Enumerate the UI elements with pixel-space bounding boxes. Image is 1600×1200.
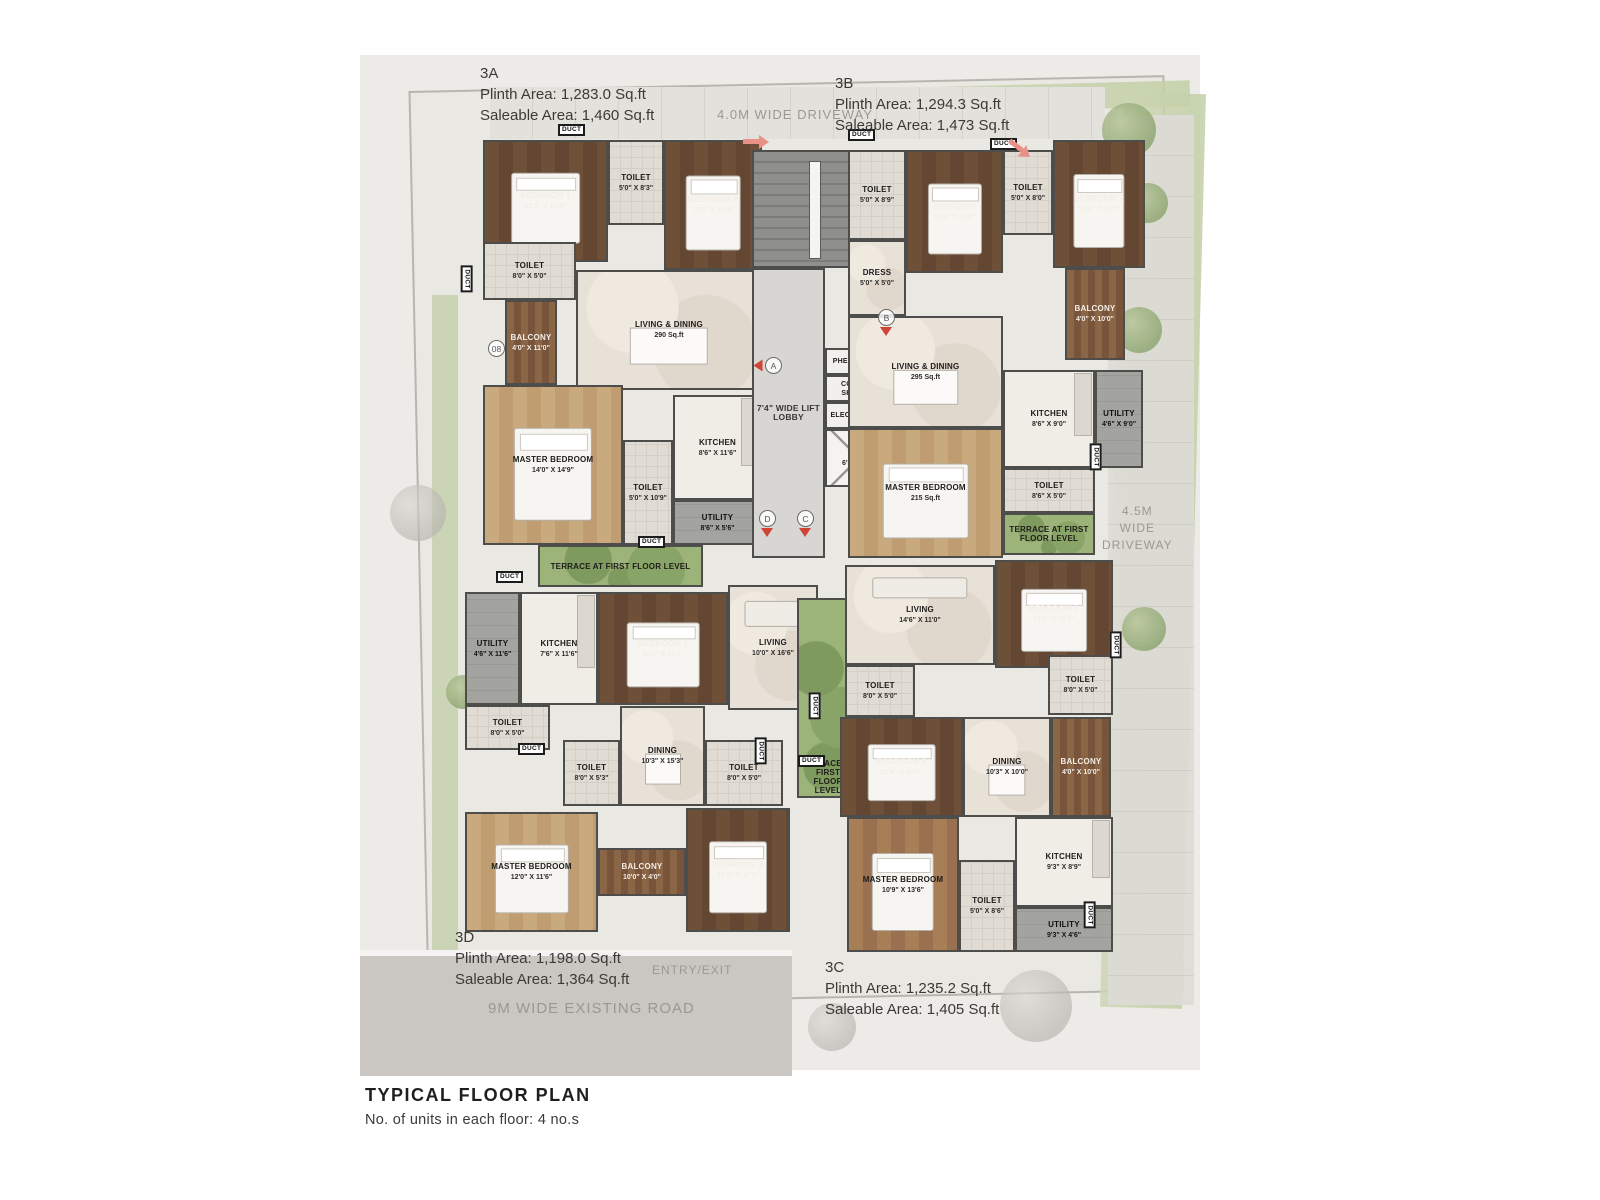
room-name: BEDROOM 1: [1029, 604, 1079, 613]
room-name: TOILET: [577, 763, 607, 772]
room-label: TOILET8'0" X 5'0": [725, 762, 763, 784]
unit-id: 3A: [480, 63, 654, 84]
room-label: BEDROOM 211'9" X 10'0": [874, 756, 928, 778]
driveway-right-line1: 4.5M: [1102, 503, 1173, 520]
unit-id: 3D: [455, 927, 629, 948]
room-name: UTILITY: [477, 639, 509, 648]
room-toilet: TOILET5'0" X 8'6": [959, 860, 1015, 952]
reference-marker-08: 08: [488, 340, 505, 357]
room-dimensions: 12'0" X 11'6": [511, 873, 553, 882]
room-kitchen: KITCHEN8'6" X 9'0": [1003, 370, 1095, 468]
room-label: BEDROOM 111'3" X 10'9": [518, 190, 572, 212]
room-bedroom: BEDROOM10'3" X 13'0": [906, 150, 1003, 273]
room-dimensions: 9'3" X 4'6": [1047, 931, 1081, 940]
room-name: DINING: [648, 746, 677, 755]
duct-label: DUCT: [496, 571, 523, 583]
room-master-bedroom: MASTER BEDROOM12'0" X 11'6": [465, 812, 598, 932]
room-balcony: BALCONY10'0" X 4'0": [598, 848, 686, 896]
room-toilet: TOILET8'0" X 5'0": [705, 740, 783, 806]
direction-triangle-icon: [880, 327, 892, 336]
room-name: UTILITY: [1048, 920, 1080, 929]
room-label: BEDROOM 113'6" X 11'0": [1027, 603, 1081, 625]
room-name: TERRACE AT FIRST FLOOR LEVEL: [1007, 525, 1091, 543]
room-bedroom-1: BEDROOM 110'3" X 11'6": [598, 592, 728, 705]
room-dimensions: 10'6" X 13'9": [692, 206, 734, 215]
room-label: BEDROOM10'3" X 13'0": [931, 201, 978, 223]
room-bedroom-2: BEDROOM 210'6" X 13'9": [664, 140, 762, 270]
room-name: DRESS: [863, 268, 892, 277]
room-dimensions: 5'0" X 5'0": [860, 279, 894, 288]
room-bedroom-2: BEDROOM 211'9" X 10'0": [840, 717, 963, 817]
room-label: TOILET8'6" X 5'0": [1030, 480, 1068, 502]
room-bedroom-2: BEDROOM 210'0" X 12'0": [686, 808, 790, 932]
room-label: LIVING & DINING290 Sq.ft: [633, 319, 705, 341]
room-label: KITCHEN8'6" X 9'0": [1029, 408, 1070, 430]
landscape-strip-left: [432, 295, 458, 955]
room-dimensions: 8'0" X 5'0": [863, 692, 897, 701]
room-label: UTILITY4'6" X 9'0": [1100, 408, 1138, 430]
room-dimensions: 8'0" X 5'0": [727, 774, 761, 783]
room-label: BEDROOM 210'0" X 12'0": [711, 859, 765, 881]
room-label: BEDROOM 210'3" X 13'0": [1072, 193, 1126, 215]
room-master-bedroom: MASTER BEDROOM215 Sq.ft: [848, 428, 1003, 558]
room-dimensions: 5'0" X 8'3": [619, 184, 653, 193]
duct-label: DUCT: [461, 265, 473, 292]
room-name: TOILET: [493, 718, 523, 727]
driveway-right-label: 4.5M WIDE DRIVEWAY: [1102, 503, 1173, 554]
duct-label: DUCT: [809, 692, 821, 719]
unit-saleable: Saleable Area: 1,460 Sq.ft: [480, 107, 654, 124]
room-dining: DINING10'3" X 15'3": [620, 706, 705, 806]
room-label: BALCONY4'0" X 11'0": [509, 332, 554, 354]
room-label: 7'4" WIDE LIFT LOBBY: [754, 403, 823, 423]
room-master-bedroom: MASTER BEDROOM14'0" X 14'9": [483, 385, 623, 545]
room-kitchen: KITCHEN9'3" X 8'9": [1015, 817, 1113, 907]
room-dimensions: 5'0" X 8'0": [1011, 194, 1045, 203]
room-dimensions: 290 Sq.ft: [654, 331, 683, 340]
room-balcony: BALCONY4'0" X 10'0": [1051, 717, 1111, 817]
room-dimensions: 10'3" X 10'0": [986, 768, 1028, 777]
room-utility: UTILITY4'6" X 9'0": [1095, 370, 1143, 468]
room-utility: UTILITY8'6" X 5'6": [673, 500, 762, 545]
room-label: TOILET8'0" X 5'0": [1061, 674, 1099, 696]
room-name: TOILET: [1034, 481, 1064, 490]
room-balcony: BALCONY4'0" X 11'0": [505, 300, 557, 385]
room-name: MASTER BEDROOM: [491, 862, 572, 871]
duct-label: DUCT: [1110, 631, 1122, 658]
room-label: DINING10'3" X 10'0": [984, 756, 1030, 778]
room-label: TOILET8'0" X 5'0": [488, 717, 526, 739]
room-dimensions: 7'6" X 11'6": [540, 650, 578, 659]
room-label: BEDROOM 110'3" X 11'6": [636, 638, 690, 660]
room-label: TOILET8'0" X 5'0": [861, 680, 899, 702]
tree-icon: [1122, 607, 1166, 651]
room-name: BEDROOM 2: [688, 195, 738, 204]
room-dimensions: 11'3" X 10'9": [525, 202, 567, 211]
room-name: TOILET: [865, 681, 895, 690]
driveway-right-line3: DRIVEWAY: [1102, 537, 1173, 554]
room-dimensions: 8'6" X 5'6": [700, 524, 734, 533]
room-dimensions: 5'0" X 8'6": [970, 907, 1004, 916]
room-living: LIVING14'6" X 11'0": [845, 565, 995, 665]
room-toilet: TOILET8'0" X 5'0": [1048, 655, 1113, 715]
room-name: MASTER BEDROOM: [513, 455, 594, 464]
sofa-icon: [872, 578, 967, 599]
room-dimensions: 4'0" X 10'0": [1062, 768, 1100, 777]
room-utility: UTILITY9'3" X 4'6": [1015, 907, 1113, 952]
room-dimensions: 10'3" X 13'0": [934, 213, 976, 222]
room-name: KITCHEN: [1046, 852, 1083, 861]
room-name: LIVING & DINING: [635, 320, 703, 329]
title-block: TYPICAL FLOOR PLAN No. of units in each …: [365, 1085, 591, 1128]
room-label: LIVING14'6" X 11'0": [897, 604, 943, 626]
room-name: KITCHEN: [699, 438, 736, 447]
room-label: TERRACE AT FIRST FLOOR LEVEL: [549, 561, 693, 572]
duct-label: DUCT: [518, 743, 545, 755]
room-toilet: TOILET5'0" X 8'0": [1003, 150, 1053, 235]
room-dimensions: 4'6" X 11'6": [474, 650, 512, 659]
room-label: BALCONY4'0" X 10'0": [1073, 303, 1118, 325]
direction-triangle-icon: [761, 528, 773, 537]
entry-exit-label: ENTRY/EXIT: [652, 963, 732, 977]
room-name: TOILET: [1066, 675, 1096, 684]
room-dimensions: 5'0" X 8'9": [860, 196, 894, 205]
room-toilet: TOILET5'0" X 8'9": [848, 150, 906, 240]
room-name: LIVING: [759, 638, 787, 647]
sofa-icon: [744, 601, 801, 627]
duct-label: DUCT: [638, 536, 665, 548]
room-toilet: TOILET8'0" X 5'3": [563, 740, 620, 806]
room-utility: UTILITY4'6" X 11'6": [465, 592, 520, 705]
room-master-bedroom: MASTER BEDROOM10'9" X 13'6": [847, 817, 959, 952]
duct-label: DUCT: [798, 755, 825, 767]
room-dimensions: 10'9" X 13'6": [882, 886, 924, 895]
room-name: UTILITY: [1103, 409, 1135, 418]
room-name: BALCONY: [511, 333, 552, 342]
room-terrace-at-first-floor-level: TERRACE AT FIRST FLOOR LEVEL: [1003, 513, 1095, 555]
room-dimensions: 10'3" X 11'6": [642, 650, 684, 659]
room-dimensions: 8'0" X 5'3": [574, 774, 608, 783]
room-label: UTILITY4'6" X 11'6": [472, 638, 514, 660]
floor-plan: 4.0M WIDE DRIVEWAY 4.5M WIDE DRIVEWAY 9M…: [360, 55, 1200, 1070]
direction-triangle-icon: [799, 528, 811, 537]
driveway-right-line2: WIDE: [1102, 520, 1173, 537]
room-dimensions: 10'0" X 12'0": [717, 871, 759, 880]
room-terrace-at-first-floor-level: TERRACE AT FIRST FLOOR LEVEL: [538, 545, 703, 587]
room-living-dining: LIVING & DINING290 Sq.ft: [576, 270, 762, 390]
room-label: LIVING10'0" X 16'6": [750, 637, 796, 659]
road-label: 9M WIDE EXISTING ROAD: [488, 1000, 695, 1017]
plan-title: TYPICAL FLOOR PLAN: [365, 1085, 591, 1106]
room-name: MASTER BEDROOM: [885, 483, 966, 492]
reference-marker-b: B: [878, 309, 895, 326]
unit-plinth: Plinth Area: 1,294.3 Sq.ft: [835, 96, 1001, 113]
room-name: BALCONY: [622, 862, 663, 871]
room-name: BEDROOM 1: [638, 639, 688, 648]
room-dimensions: 295 Sq.ft: [911, 373, 940, 382]
room-name: UTILITY: [702, 513, 734, 522]
duct-label: DUCT: [755, 737, 767, 764]
room-dimensions: 8'0" X 5'0": [1063, 686, 1097, 695]
room-toilet: TOILET8'6" X 5'0": [1003, 468, 1095, 513]
unit-header-3b: 3B Plinth Area: 1,294.3 Sq.ft Saleable A…: [835, 73, 1009, 136]
room-dimensions: 11'9" X 10'0": [881, 768, 923, 777]
room-name: TERRACE AT FIRST FLOOR LEVEL: [551, 562, 691, 571]
room-label: TOILET8'0" X 5'3": [572, 762, 610, 784]
room-label: BEDROOM 210'6" X 13'9": [686, 194, 740, 216]
direction-triangle-icon: [754, 360, 763, 372]
reference-marker-d: D: [759, 510, 776, 527]
driveway-direction-arrow: [743, 139, 759, 144]
room-name: KITCHEN: [1031, 409, 1068, 418]
room-dimensions: 8'6" X 9'0": [1032, 420, 1066, 429]
reference-marker-a: A: [765, 357, 782, 374]
room-label: LIVING & DINING295 Sq.ft: [890, 361, 962, 383]
unit-plinth: Plinth Area: 1,283.0 Sq.ft: [480, 86, 646, 103]
room-dimensions: 4'6" X 9'0": [1102, 420, 1136, 429]
room-name: BEDROOM: [933, 202, 976, 211]
room-name: BEDROOM 2: [713, 860, 763, 869]
unit-id: 3C: [825, 957, 999, 978]
room-dimensions: 9'3" X 8'9": [1047, 863, 1081, 872]
room-label: TOILET5'0" X 10'9": [627, 482, 669, 504]
room-toilet: TOILET5'0" X 10'9": [623, 440, 673, 545]
room-name: TOILET: [515, 261, 545, 270]
room-name: KITCHEN: [541, 639, 578, 648]
room-name: TOILET: [972, 896, 1002, 905]
reference-marker-c: C: [797, 510, 814, 527]
room-name: TOILET: [1013, 183, 1043, 192]
tree-icon: [390, 485, 446, 541]
room-dimensions: 10'0" X 4'0": [623, 873, 661, 882]
room-balcony: BALCONY4'0" X 10'0": [1065, 268, 1125, 360]
room-dimensions: 13'6" X 11'0": [1033, 615, 1075, 624]
room-toilet: TOILET8'0" X 5'0": [845, 665, 915, 717]
unit-plinth: Plinth Area: 1,235.2 Sq.ft: [825, 980, 991, 997]
unit-plinth: Plinth Area: 1,198.0 Sq.ft: [455, 950, 621, 967]
room-label: DRESS5'0" X 5'0": [858, 267, 896, 289]
room-label: TOILET5'0" X 8'0": [1009, 182, 1047, 204]
room-name: BEDROOM 2: [876, 757, 926, 766]
unit-header-3d: 3D Plinth Area: 1,198.0 Sq.ft Saleable A…: [455, 927, 629, 990]
room-dimensions: 8'6" X 11'6": [699, 449, 737, 458]
plan-subtitle: No. of units in each floor: 4 no.s: [365, 1112, 591, 1128]
room-name: TOILET: [862, 185, 892, 194]
room-label: KITCHEN8'6" X 11'6": [697, 437, 739, 459]
room-name: BALCONY: [1075, 304, 1116, 313]
duct-label: DUCT: [1084, 901, 1096, 928]
room-label: TOILET8'0" X 5'0": [510, 260, 548, 282]
room-label: UTILITY8'6" X 5'6": [698, 512, 736, 534]
duct-label: DUCT: [1090, 443, 1102, 470]
room-dimensions: 14'6" X 11'0": [899, 616, 941, 625]
room-toilet: TOILET8'0" X 5'0": [483, 242, 576, 300]
room-kitchen: KITCHEN7'6" X 11'6": [520, 592, 598, 705]
room-dimensions: 5'0" X 10'9": [629, 494, 667, 503]
room-dining: DINING10'3" X 10'0": [963, 717, 1051, 817]
unit-id: 3B: [835, 73, 1009, 94]
room-dimensions: 10'3" X 13'0": [1078, 205, 1120, 214]
unit-header-3c: 3C Plinth Area: 1,235.2 Sq.ft Saleable A…: [825, 957, 999, 1020]
room-label: TERRACE AT FIRST FLOOR LEVEL: [1005, 524, 1093, 544]
room-name: TOILET: [621, 173, 651, 182]
tree-icon: [1000, 970, 1072, 1042]
room-dimensions: 4'0" X 11'0": [512, 344, 550, 353]
room-bedroom-2: BEDROOM 210'3" X 13'0": [1053, 140, 1145, 268]
room-label: TOILET5'0" X 8'6": [968, 895, 1006, 917]
room-name: MASTER BEDROOM: [863, 875, 944, 884]
unit-saleable: Saleable Area: 1,364 Sq.ft: [455, 971, 629, 988]
room-name: LIVING: [906, 605, 934, 614]
room-label: MASTER BEDROOM10'9" X 13'6": [861, 874, 946, 896]
room-name: BEDROOM 2: [1074, 194, 1124, 203]
room-label: BALCONY4'0" X 10'0": [1059, 756, 1104, 778]
room-name: TOILET: [633, 483, 663, 492]
room-label: TOILET5'0" X 8'3": [617, 172, 655, 194]
room-label: MASTER BEDROOM215 Sq.ft: [883, 482, 968, 504]
room-dimensions: 8'0" X 5'0": [512, 272, 546, 281]
room-dimensions: 14'0" X 14'9": [532, 466, 574, 475]
page: 4.0M WIDE DRIVEWAY 4.5M WIDE DRIVEWAY 9M…: [0, 0, 1600, 1200]
unit-saleable: Saleable Area: 1,405 Sq.ft: [825, 1001, 999, 1018]
room-dimensions: 215 Sq.ft: [911, 494, 940, 503]
room-label: BALCONY10'0" X 4'0": [620, 861, 665, 883]
room-label: KITCHEN9'3" X 8'9": [1044, 851, 1085, 873]
room-living-dining: LIVING & DINING295 Sq.ft: [848, 316, 1003, 428]
room-label: UTILITY9'3" X 4'6": [1045, 919, 1083, 941]
room-name: DINING: [992, 757, 1021, 766]
room-toilet: TOILET5'0" X 8'3": [608, 140, 664, 225]
room-kitchen: KITCHEN8'6" X 11'6": [673, 395, 762, 500]
room-name: LIVING & DINING: [892, 362, 960, 371]
unit-saleable: Saleable Area: 1,473 Sq.ft: [835, 117, 1009, 134]
unit-header-3a: 3A Plinth Area: 1,283.0 Sq.ft Saleable A…: [480, 63, 654, 126]
room-name: BALCONY: [1061, 757, 1102, 766]
room-name: BEDROOM 1: [520, 191, 570, 200]
room-dimensions: 10'0" X 16'6": [752, 649, 794, 658]
room-dimensions: 8'0" X 5'0": [490, 729, 524, 738]
room-bedroom-1: BEDROOM 113'6" X 11'0": [995, 560, 1113, 668]
room-label: DINING10'3" X 15'3": [640, 745, 686, 767]
room-dimensions: 8'6" X 5'0": [1032, 492, 1066, 501]
room-dimensions: 4'0" X 10'0": [1076, 315, 1114, 324]
room-label: MASTER BEDROOM12'0" X 11'6": [489, 861, 574, 883]
room-label: MASTER BEDROOM14'0" X 14'9": [511, 454, 596, 476]
room-name: 7'4" WIDE LIFT LOBBY: [756, 404, 821, 422]
room-label: KITCHEN7'6" X 11'6": [538, 638, 580, 660]
room-label: TOILET5'0" X 8'9": [858, 184, 896, 206]
room-dimensions: 10'3" X 15'3": [642, 757, 684, 766]
room-dress: DRESS5'0" X 5'0": [848, 240, 906, 316]
